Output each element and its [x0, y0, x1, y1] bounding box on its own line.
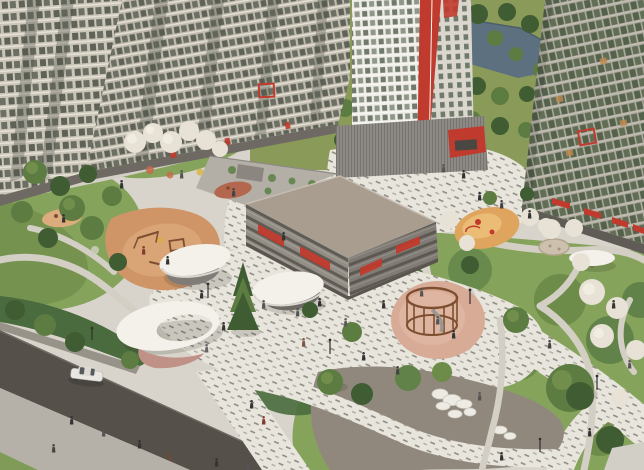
sand-pit: [539, 239, 569, 255]
tower-center: [336, 0, 488, 178]
architectural-render: Aerial 3D render of a residential comple…: [0, 0, 644, 470]
